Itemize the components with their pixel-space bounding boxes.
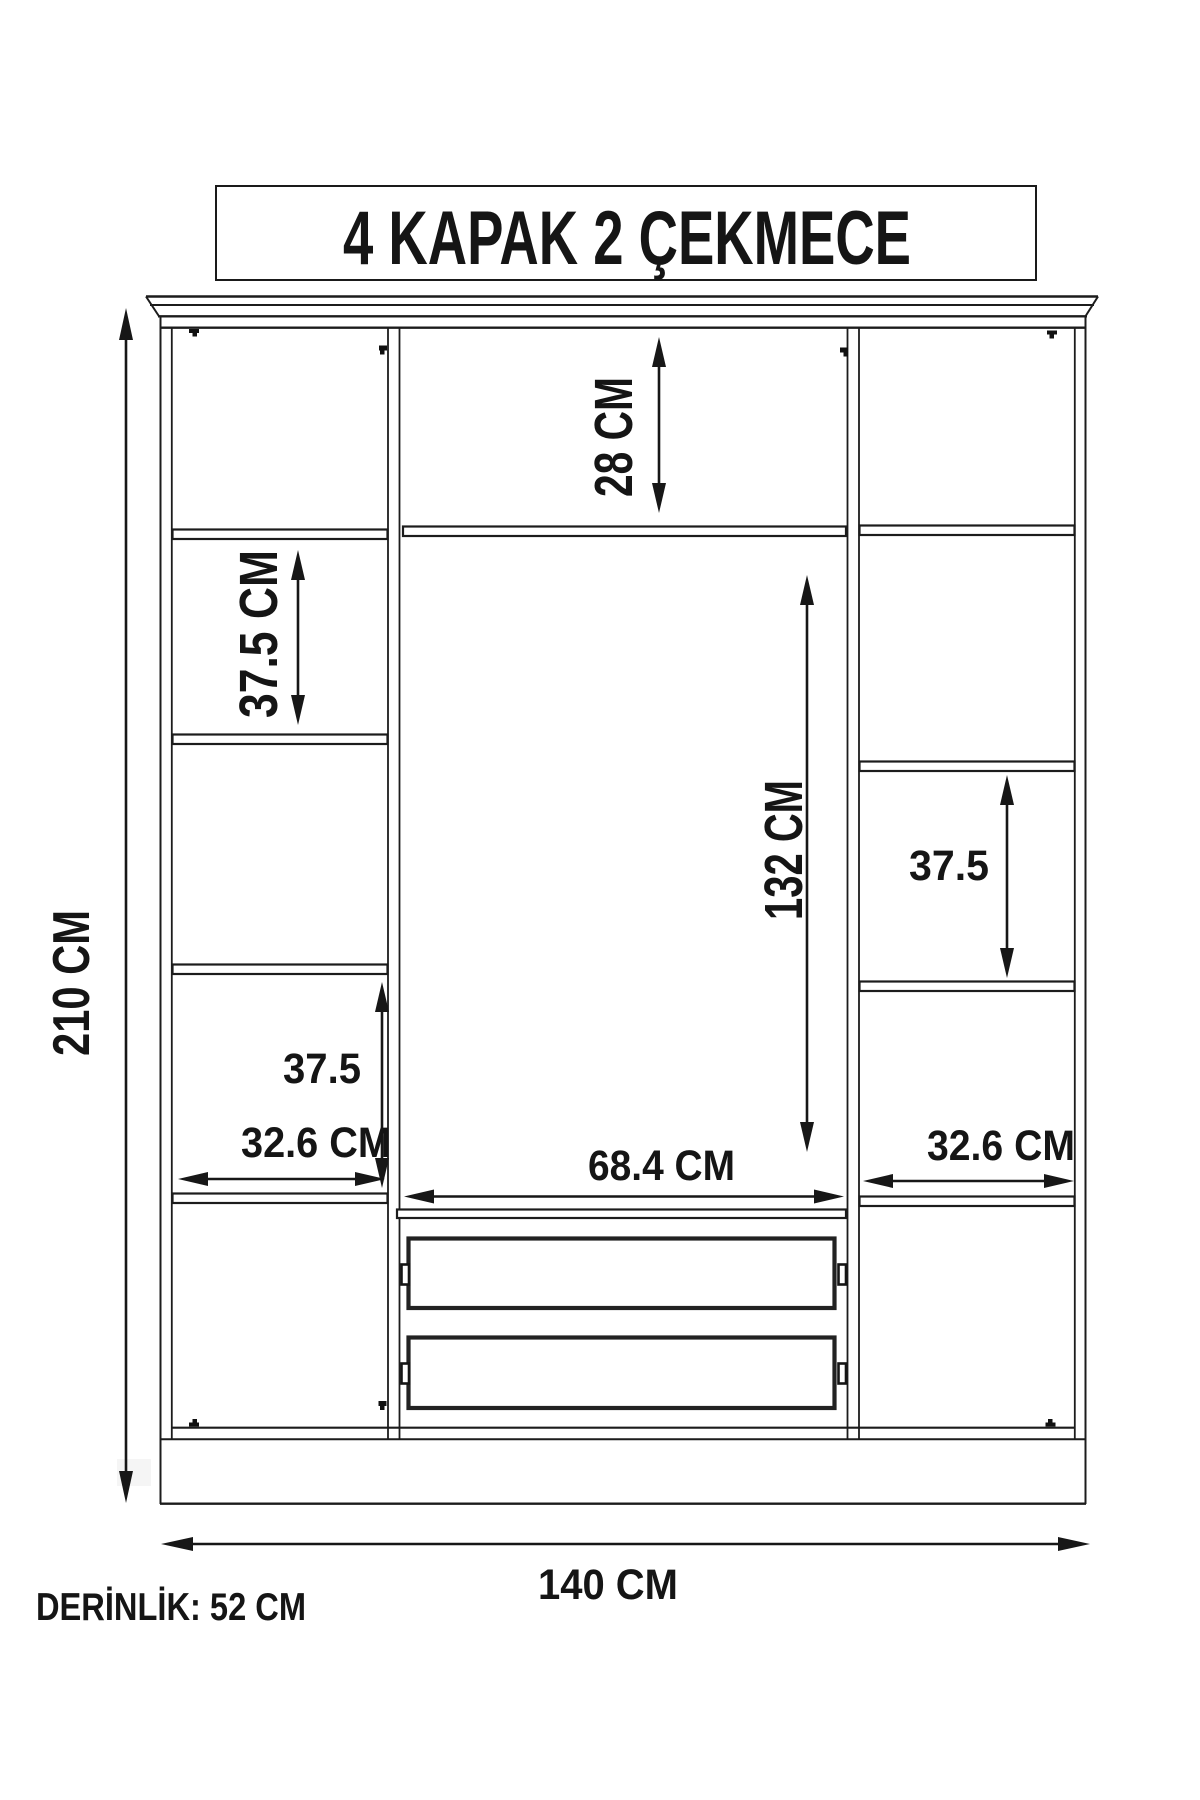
svg-text:140 CM: 140 CM	[538, 1561, 678, 1609]
svg-text:4 KAPAK 2 ÇEKMECE: 4 KAPAK 2 ÇEKMECE	[343, 196, 911, 281]
svg-text:DERİNLİK: 52 CM: DERİNLİK: 52 CM	[36, 1586, 306, 1629]
svg-text:68.4 CM: 68.4 CM	[588, 1142, 735, 1190]
svg-text:210 CM: 210 CM	[43, 910, 101, 1056]
svg-text:32.6 CM: 32.6 CM	[927, 1122, 1075, 1170]
svg-text:37.5: 37.5	[283, 1045, 361, 1093]
svg-text:37.5: 37.5	[909, 842, 989, 890]
svg-text:32.6 CM: 32.6 CM	[241, 1119, 391, 1167]
svg-text:28 CM: 28 CM	[584, 377, 644, 497]
svg-text:132 CM: 132 CM	[754, 780, 814, 920]
svg-text:37.5 CM: 37.5 CM	[229, 550, 289, 718]
